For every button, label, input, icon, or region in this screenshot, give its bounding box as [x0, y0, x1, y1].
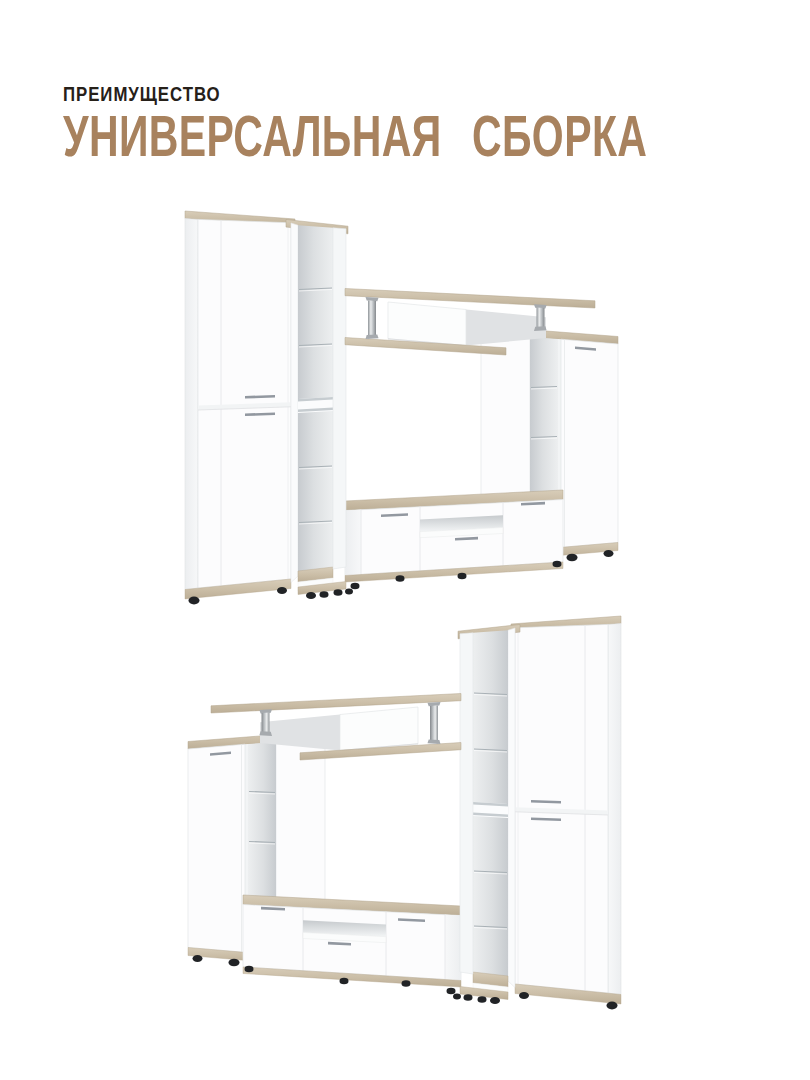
- wall-unit-left-hand-assembly: [148, 196, 668, 666]
- header: ПРЕИМУЩЕСТВО УНИВЕРСАЛЬНАЯ СБОРКА: [63, 82, 810, 161]
- advantage-eyebrow: ПРЕИМУЩЕСТВО: [63, 82, 810, 106]
- wall-unit-render-top: [148, 196, 668, 666]
- wall-unit-render-bottom: [138, 601, 658, 1071]
- page-title: УНИВЕРСАЛЬНАЯ СБОРКА: [63, 111, 810, 161]
- advantage-eyebrow-text: ПРЕИМУЩЕСТВО: [63, 82, 221, 106]
- wall-unit-right-hand-assembly-mirrored: [138, 601, 658, 1071]
- page-title-text: УНИВЕРСАЛЬНАЯ СБОРКА: [63, 111, 647, 161]
